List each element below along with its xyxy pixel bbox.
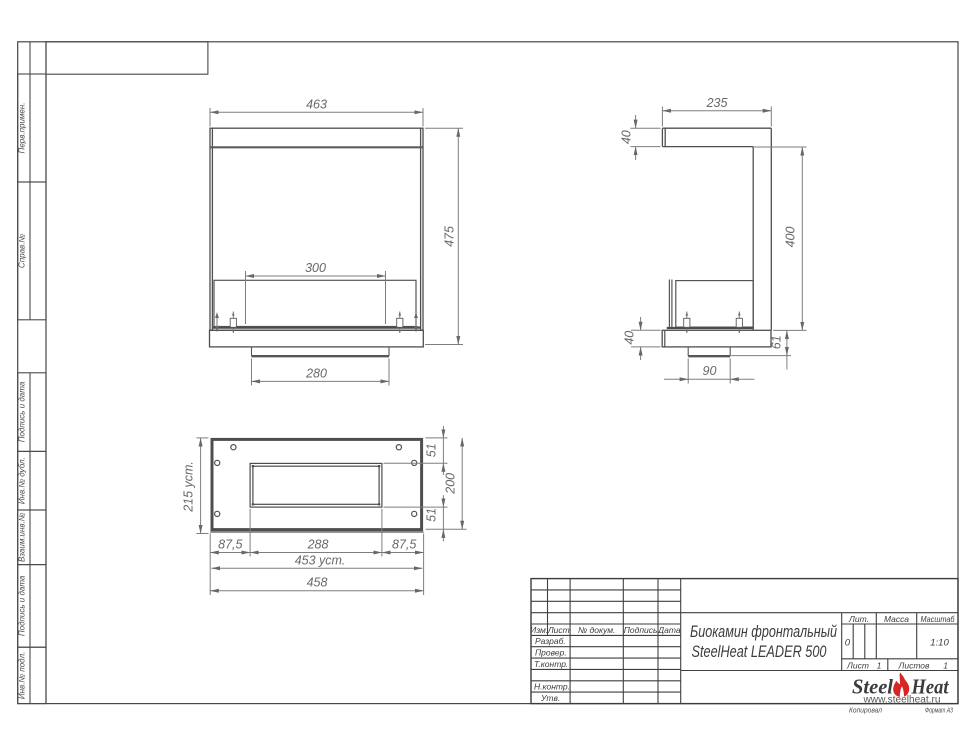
- svg-text:280: 280: [305, 367, 327, 381]
- svg-text:Подпись и дата: Подпись и дата: [18, 381, 27, 442]
- svg-text:Лист: Лист: [547, 625, 570, 635]
- svg-text:Н.контр.: Н.контр.: [534, 682, 570, 692]
- svg-text:453 уст.: 453 уст.: [295, 553, 346, 567]
- svg-text:51: 51: [425, 508, 439, 522]
- svg-text:458: 458: [307, 576, 328, 590]
- svg-text:Подпись: Подпись: [624, 625, 658, 635]
- svg-text:0: 0: [845, 638, 851, 649]
- svg-text:Справ.№: Справ.№: [18, 234, 27, 268]
- svg-text:235: 235: [706, 96, 728, 110]
- svg-text:Перв.примен.: Перв.примен.: [18, 103, 27, 154]
- svg-text:Биокамин фронтальный: Биокамин фронтальный: [690, 623, 837, 641]
- svg-text:Формат А3: Формат А3: [925, 706, 954, 715]
- svg-text:463: 463: [306, 98, 327, 112]
- svg-text:Утв.: Утв.: [540, 693, 560, 703]
- svg-text:Инв.№ дубл.: Инв.№ дубл.: [18, 457, 27, 504]
- svg-text:51: 51: [425, 443, 439, 457]
- svg-text:61: 61: [770, 335, 784, 349]
- svg-text:Изм.: Изм.: [530, 625, 548, 635]
- svg-text:Подпись и дата: Подпись и дата: [18, 575, 27, 636]
- svg-text:40: 40: [620, 130, 634, 144]
- svg-text:200: 200: [444, 473, 458, 495]
- svg-text:40: 40: [623, 331, 637, 345]
- svg-text:Т.контр.: Т.контр.: [534, 659, 568, 669]
- svg-text:№ докум.: № докум.: [578, 625, 615, 635]
- svg-text:Лист: Лист: [846, 660, 869, 670]
- svg-text:Копировал: Копировал: [849, 706, 883, 715]
- svg-text:Разраб.: Разраб.: [535, 636, 566, 646]
- svg-text:Лит.: Лит.: [848, 614, 869, 624]
- svg-text:288: 288: [307, 538, 329, 552]
- svg-text:SteelHeat LEADER 500: SteelHeat LEADER 500: [692, 643, 828, 661]
- svg-text:87,5: 87,5: [218, 538, 242, 552]
- svg-text:300: 300: [305, 261, 326, 275]
- svg-text:1:10: 1:10: [930, 638, 949, 649]
- svg-text:1: 1: [877, 660, 882, 670]
- svg-text:Масштаб: Масштаб: [921, 614, 956, 624]
- svg-text:215 уст.: 215 уст.: [182, 461, 196, 513]
- svg-text:Взаим.инв.№: Взаим.инв.№: [18, 512, 27, 562]
- svg-text:90: 90: [703, 364, 717, 378]
- svg-text:475: 475: [443, 226, 457, 247]
- svg-text:1: 1: [943, 660, 948, 670]
- svg-text:Дата: Дата: [657, 625, 681, 635]
- svg-text:Инв.№ подл.: Инв.№ подл.: [18, 652, 27, 699]
- svg-text:www.steelheat.ru: www.steelheat.ru: [862, 694, 940, 705]
- svg-text:87,5: 87,5: [392, 538, 416, 552]
- svg-text:400: 400: [784, 227, 798, 248]
- svg-text:Провер.: Провер.: [535, 647, 567, 657]
- svg-text:Листов: Листов: [898, 660, 931, 670]
- svg-text:Масса: Масса: [884, 614, 909, 624]
